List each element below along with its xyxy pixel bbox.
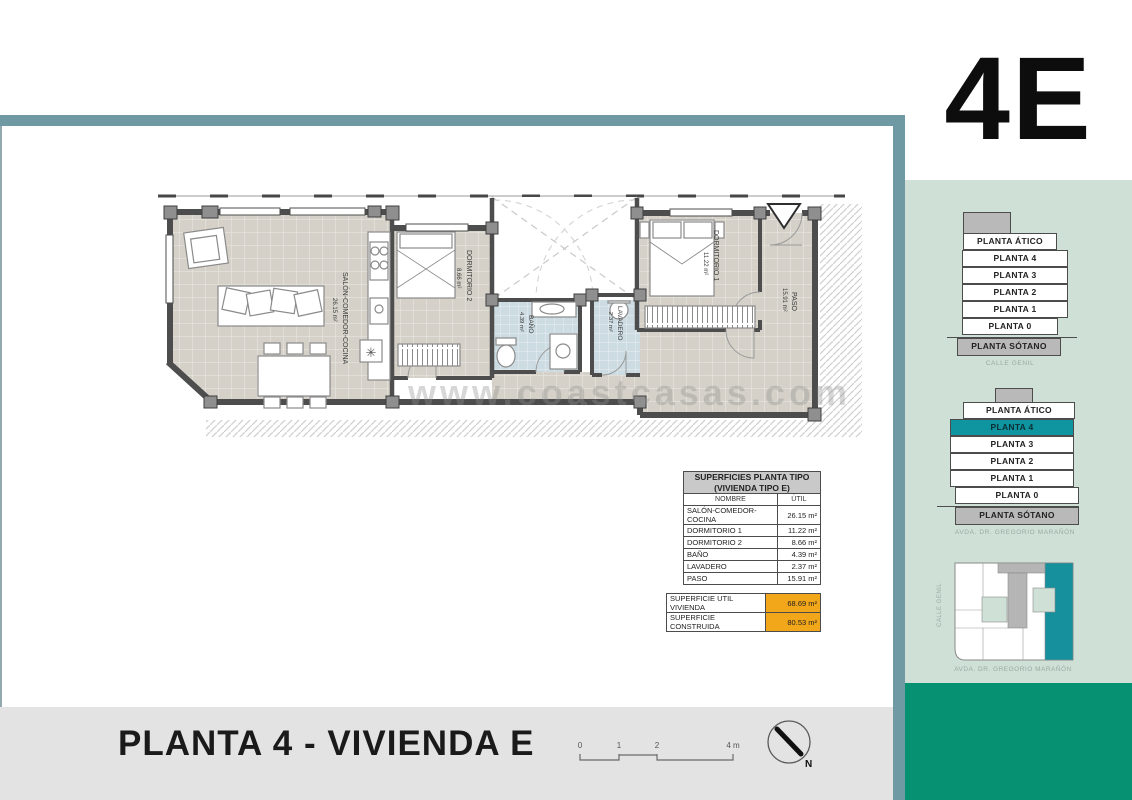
street-label-bottom: AVDA. DR. GREGORIO MARAÑÓN — [954, 664, 1072, 673]
toilet — [497, 345, 515, 367]
table-row: SALÓN-COMEDOR-COCINA26.15 m² — [684, 506, 821, 525]
floor-box-atico: PLANTA ÁTICO — [963, 233, 1057, 250]
surfaces-table-title: SUPERFICIES PLANTA TIPO(VIVIENDA TIPO E) — [684, 472, 821, 494]
unit-code: 4E — [905, 40, 1132, 158]
room-area-lavadero: 2.37 m² — [607, 312, 613, 332]
floor-box-atico: PLANTA ÁTICO — [963, 402, 1075, 419]
elevation-side: PLANTA ÁTICO PLANTA 4 PLANTA 3 PLANTA 2 … — [905, 388, 1132, 558]
summary-row: SUPERFICIE UTIL VIVIENDA68.69 m² — [667, 594, 821, 613]
floor-box-p0: PLANTA 0 — [955, 487, 1079, 504]
summary-row: SUPERFICIE CONSTRUIDA80.53 m² — [667, 613, 821, 632]
left-edge-line — [0, 126, 2, 707]
room-area-paso: 15.91 m² — [781, 288, 787, 312]
elevation-front: PLANTA ÁTICO PLANTA 4 PLANTA 3 PLANTA 2 … — [905, 210, 1132, 380]
floor-box-p1: PLANTA 1 — [962, 301, 1068, 318]
floor-box-p3: PLANTA 3 — [950, 436, 1074, 453]
room-label-bano: BAÑO — [527, 315, 536, 333]
toilet-tank — [496, 338, 516, 345]
scale-tick-4m: 4 m — [726, 741, 740, 750]
room-label-lavadero: LAVADERO — [616, 306, 623, 340]
room-label-dorm1: DORMITORIO 1 — [712, 230, 719, 281]
street-label: CALLE GENIL — [940, 360, 1080, 367]
lightwell — [1033, 588, 1055, 612]
north-letter: N — [805, 759, 812, 770]
room-label-paso: PASO — [790, 292, 797, 311]
room-label-salon: SALÓN-COMEDOR-COCINA — [341, 272, 350, 365]
floor-box-p2: PLANTA 2 — [950, 453, 1074, 470]
table-row: DORMITORIO 111.22 m² — [684, 525, 821, 537]
surfaces-table: SUPERFICIES PLANTA TIPO(VIVIENDA TIPO E)… — [683, 471, 821, 585]
floorplan-drawing: ✳ SALÓN-COMEDOR-COCINA 26.15 m² DORMITOR… — [140, 180, 880, 465]
scale-tick-0: 0 — [578, 741, 583, 750]
floor-box-sotano: PLANTA SÓTANO — [955, 507, 1079, 525]
elevation-roof-block — [963, 212, 1011, 235]
surfaces-table-block: SUPERFICIES PLANTA TIPO(VIVIENDA TIPO E)… — [666, 471, 822, 632]
room-area-salon: 26.15 m² — [331, 298, 337, 322]
patio — [982, 597, 1007, 622]
fan-symbol: ✳ — [366, 345, 377, 360]
brand-green-block — [905, 683, 1132, 800]
room-area-dorm1: 11.22 m² — [702, 252, 708, 275]
floor-box-p2: PLANTA 2 — [962, 284, 1068, 301]
north-arrow: N — [755, 705, 830, 780]
nightstand — [640, 222, 649, 238]
page-canvas: 4E — [0, 0, 1132, 800]
floor-box-p1: PLANTA 1 — [950, 470, 1074, 487]
north-needle — [777, 729, 801, 754]
wardrobe-dorm1 — [645, 306, 755, 328]
room-area-dorm2: 8.66 m² — [455, 268, 461, 288]
siteplan: CALLE GENIL AVDA. DR. GREGORIO MARAÑÓN — [925, 552, 1125, 680]
page-title: PLANTA 4 - VIVIENDA E — [118, 724, 534, 764]
floor-box-sotano: PLANTA SÓTANO — [957, 338, 1061, 356]
floor-box-p3: PLANTA 3 — [962, 267, 1068, 284]
table-row: DORMITORIO 28.66 m² — [684, 537, 821, 549]
col-header-util: ÚTIL — [777, 494, 820, 506]
street-label: AVDA. DR. GREGORIO MARAÑÓN — [935, 529, 1095, 536]
exterior-hatch-bottom — [206, 420, 862, 437]
scale-tick-1: 1 — [617, 741, 622, 750]
table-row: BAÑO4.39 m² — [684, 549, 821, 561]
room-label-dorm2: DORMITORIO 2 — [465, 250, 472, 301]
floor-box-p4: PLANTA 4 — [962, 250, 1068, 267]
teal-right-border — [893, 115, 905, 800]
col-header-nombre: NOMBRE — [684, 494, 778, 506]
table-row: PASO15.91 m² — [684, 573, 821, 585]
floor-box-p0: PLANTA 0 — [962, 318, 1058, 335]
scale-tick-2: 2 — [655, 741, 660, 750]
table-row: LAVADERO2.37 m² — [684, 561, 821, 573]
street-label-left: CALLE GENIL — [937, 583, 943, 627]
floor-box-p4-highlighted: PLANTA 4 — [950, 419, 1074, 436]
dining-table — [258, 356, 330, 396]
courtyard — [492, 197, 637, 300]
teal-top-border — [0, 115, 905, 126]
room-area-bano: 4.39 m² — [518, 312, 524, 332]
surfaces-summary-table: SUPERFICIE UTIL VIVIENDA68.69 m² SUPERFI… — [666, 593, 821, 632]
exterior-hatch-right — [820, 204, 862, 436]
radiator-dorm2 — [398, 344, 460, 366]
